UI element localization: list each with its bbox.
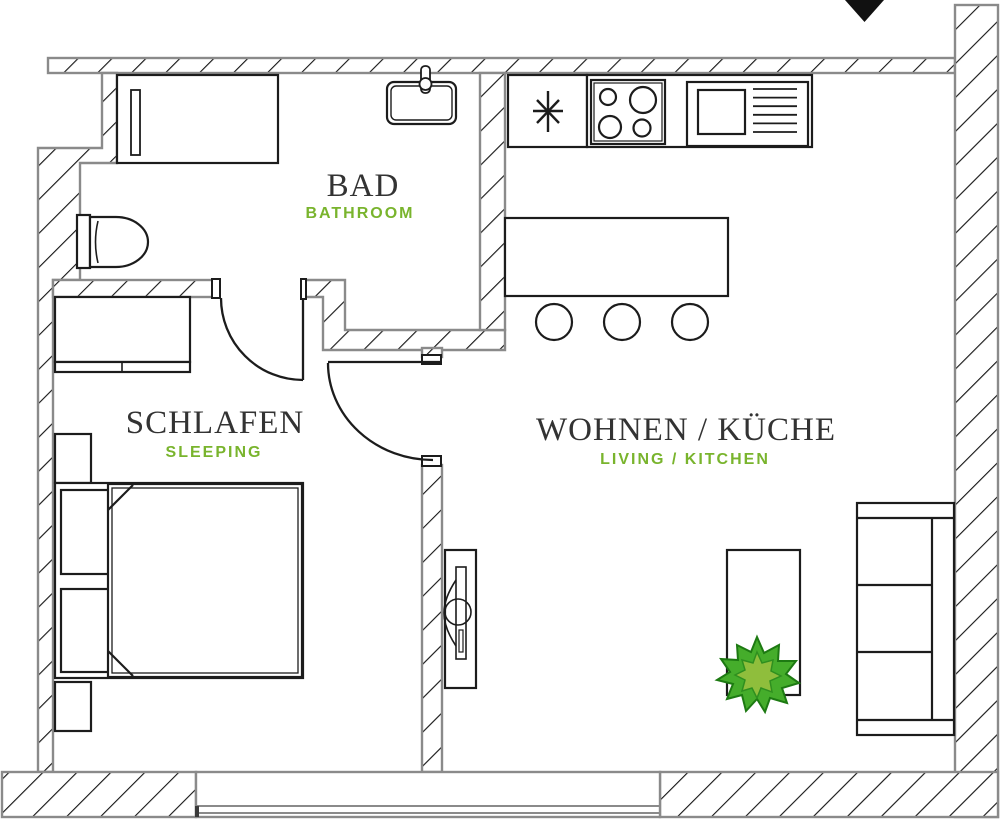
nightstand-bottom (55, 682, 91, 731)
kitchen-sink (687, 82, 808, 146)
toilet-bowl (90, 217, 148, 267)
wall-top (48, 58, 955, 73)
bathroom-fixtures (77, 66, 456, 268)
room-label-sleeping: SCHLAFEN (126, 405, 305, 441)
bathroom-door (221, 298, 303, 380)
sofa (857, 503, 954, 735)
wall-bath-south (303, 280, 505, 350)
wall-bottom-left (2, 772, 196, 817)
bar-stool (536, 304, 572, 340)
sink-basin (698, 90, 745, 134)
window-mullion-tick (195, 806, 199, 817)
living-furniture (444, 503, 954, 735)
room-label-living: WOHNEN / KÜCHE (536, 412, 836, 448)
bathroom-door-arc (221, 298, 303, 380)
pillow (61, 589, 110, 672)
wall-right (955, 5, 998, 817)
fridge (508, 75, 587, 147)
room-sublabel-bathroom: BATHROOM (305, 205, 414, 222)
shower-handle (131, 90, 140, 155)
burner (630, 87, 656, 113)
window-bottom (195, 772, 660, 817)
tv-lowboard (444, 550, 476, 688)
bedroom-furniture (55, 297, 303, 731)
living-room-door (328, 362, 440, 460)
burner (634, 120, 651, 137)
pillow (61, 490, 110, 574)
floor-plan-svg: BAD BATHROOM SCHLAFEN SLEEPING WOHNEN / … (0, 0, 1000, 825)
room-label-bathroom: BAD (327, 168, 400, 204)
entrance-arrow-icon (845, 0, 884, 22)
bar-stool (604, 304, 640, 340)
jamb-bath-left (212, 279, 220, 298)
wall-bedroom-east (422, 465, 442, 772)
floor-plan-canvas: BAD BATHROOM SCHLAFEN SLEEPING WOHNEN / … (0, 0, 1000, 825)
nightstand-top (55, 434, 91, 483)
wall-bedroom-north (53, 280, 213, 297)
bar-counter (505, 218, 728, 296)
burner (599, 116, 621, 138)
wall-bottom-right (660, 772, 998, 817)
bed (55, 483, 303, 678)
bar-stool (672, 304, 708, 340)
wardrobe (55, 297, 190, 372)
burner (600, 89, 616, 105)
toilet (77, 215, 148, 268)
jamb-bath-right (301, 279, 306, 299)
bathroom-sink (387, 66, 456, 124)
shower-tray (117, 75, 278, 163)
room-sublabel-sleeping: SLEEPING (166, 444, 263, 461)
toilet-tank (77, 215, 90, 268)
faucet-knob (420, 78, 432, 90)
room-sublabel-living: LIVING / KITCHEN (600, 451, 770, 468)
kitchen (505, 75, 812, 340)
wall-kitchen-west (480, 73, 505, 330)
living-room-door-arc (328, 363, 433, 460)
cooktop (591, 80, 665, 144)
